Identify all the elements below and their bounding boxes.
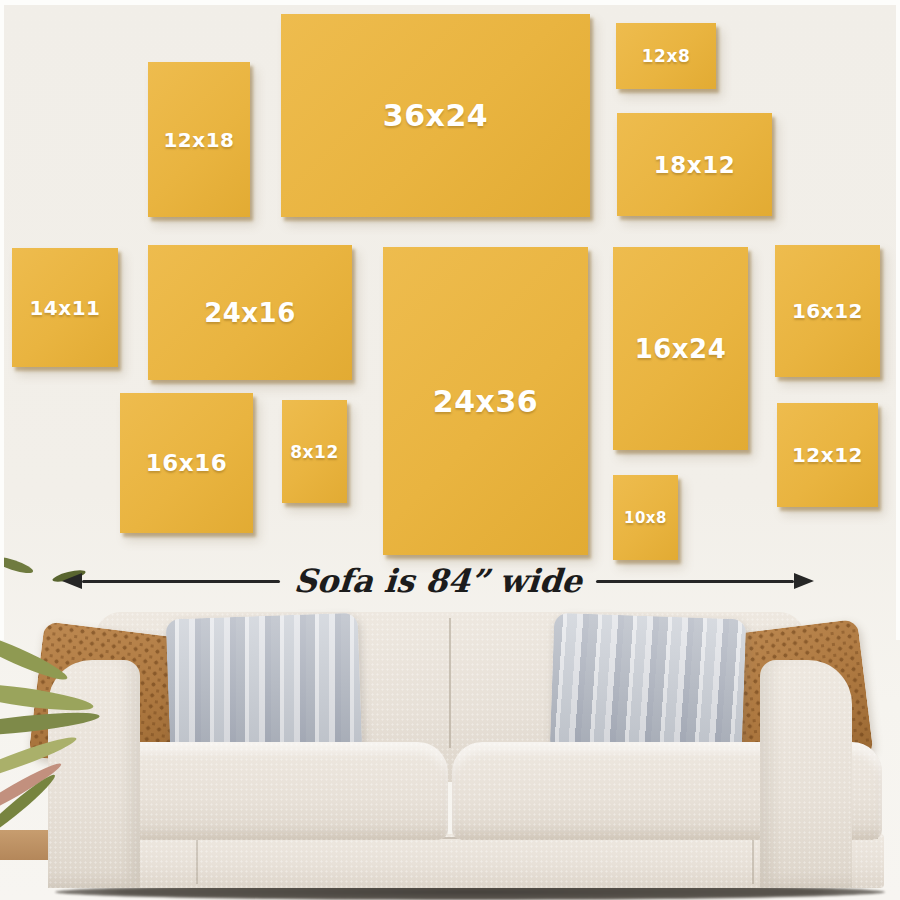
canvas-size-label: 36x24 — [383, 98, 488, 133]
mat-border-left — [0, 0, 4, 640]
pillow-gray-right — [550, 613, 747, 760]
sofa-arm-right — [760, 660, 852, 888]
canvas-size-label: 12x12 — [792, 443, 863, 467]
arrow-line-right — [596, 580, 794, 583]
canvas-size-label: 14x11 — [29, 296, 100, 320]
arrow-line-left — [82, 580, 280, 583]
canvas-12x12: 12x12 — [777, 403, 878, 507]
canvas-size-label: 16x12 — [792, 299, 863, 323]
pillow-gray-left — [166, 613, 363, 760]
canvas-size-label: 24x36 — [433, 384, 538, 419]
planter — [0, 830, 54, 860]
canvas-size-label: 12x8 — [642, 46, 690, 66]
sofa-width-caption: Sofa is 84” wide — [293, 562, 584, 600]
canvas-36x24: 36x24 — [281, 14, 590, 217]
plant-leaf — [0, 554, 35, 576]
canvas-16x12: 16x12 — [775, 245, 880, 377]
canvas-size-label: 12x18 — [163, 128, 234, 152]
mat-border-right — [896, 0, 900, 640]
canvas-12x18: 12x18 — [148, 62, 250, 217]
canvas-size-label: 24x16 — [204, 298, 296, 328]
canvas-18x12: 18x12 — [617, 113, 772, 216]
sofa-skirt-seam-right — [752, 840, 754, 884]
canvas-8x12: 8x12 — [282, 400, 347, 503]
canvas-24x16: 24x16 — [148, 245, 352, 380]
sofa-backrest-seam — [449, 618, 451, 748]
sofa-skirt-seam-left — [196, 840, 198, 884]
sofa-width-dimension: Sofa is 84” wide — [62, 562, 814, 600]
canvas-16x24: 16x24 — [613, 247, 748, 450]
canvas-size-label: 10x8 — [624, 509, 667, 527]
mat-border-top — [0, 0, 900, 5]
wall-art-size-guide: 12x18 36x24 12x8 18x12 14x11 24x16 24x36… — [0, 0, 900, 900]
canvas-size-label: 16x16 — [146, 450, 227, 476]
canvas-24x36: 24x36 — [383, 247, 588, 555]
canvas-16x16: 16x16 — [120, 393, 253, 533]
canvas-size-label: 16x24 — [635, 334, 727, 364]
arrow-left-head-icon — [62, 573, 82, 589]
canvas-10x8: 10x8 — [613, 475, 678, 560]
canvas-size-label: 8x12 — [290, 442, 338, 462]
canvas-size-label: 18x12 — [654, 152, 735, 178]
canvas-14x11: 14x11 — [12, 248, 118, 367]
arrow-right-head-icon — [794, 573, 814, 589]
canvas-12x8: 12x8 — [616, 23, 716, 89]
